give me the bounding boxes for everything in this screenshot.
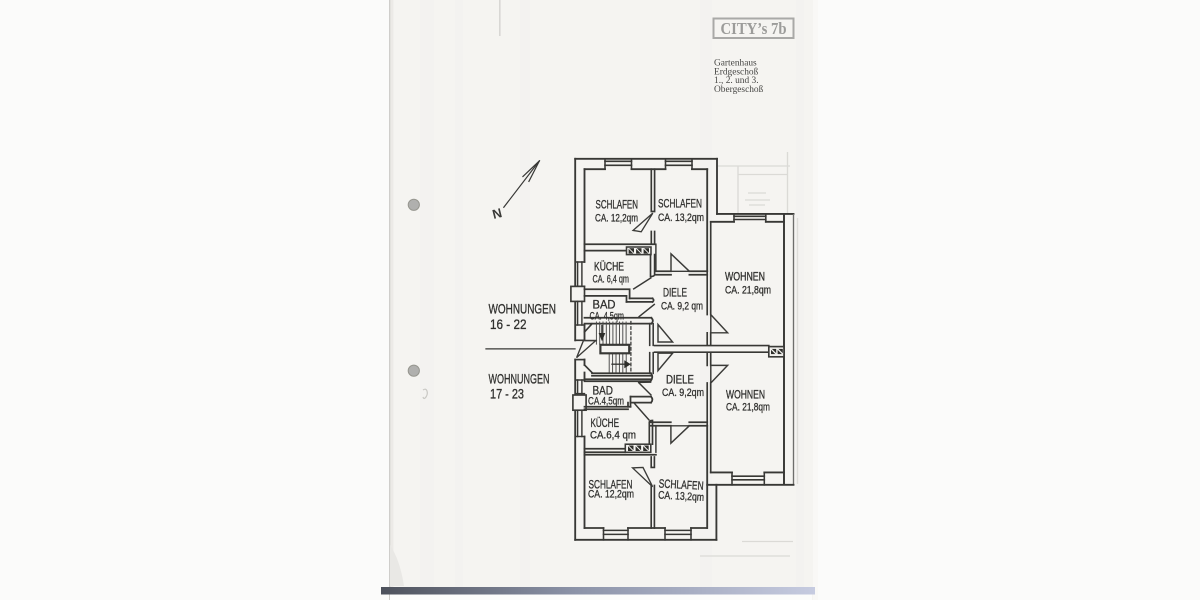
svg-text:CA. 6,4 qm: CA. 6,4 qm	[593, 274, 630, 286]
svg-text:CA. 4,5qm: CA. 4,5qm	[590, 311, 625, 323]
svg-text:CA. 9,2qm: CA. 9,2qm	[662, 387, 704, 399]
svg-text:CITY’s 7b: CITY’s 7b	[721, 19, 787, 38]
svg-text:KÜCHE: KÜCHE	[594, 262, 624, 274]
svg-text:CA. 12,2qm: CA. 12,2qm	[595, 213, 638, 225]
svg-text:CA. 13,2qm: CA. 13,2qm	[658, 490, 705, 504]
svg-text:CA.4,5qm: CA.4,5qm	[588, 396, 624, 408]
svg-text:SCHLAFEN: SCHLAFEN	[596, 198, 639, 212]
svg-text:DIELE: DIELE	[666, 375, 694, 387]
svg-text:WOHNUNGEN: WOHNUNGEN	[489, 301, 557, 317]
svg-text:CA. 9,2 qm: CA. 9,2 qm	[661, 301, 703, 313]
svg-text:WOHNEN: WOHNEN	[725, 272, 765, 284]
svg-text:CA.6,4 qm: CA.6,4 qm	[590, 430, 636, 442]
svg-text:KÜCHE: KÜCHE	[591, 418, 620, 430]
svg-text:16 - 22: 16 - 22	[490, 316, 527, 332]
svg-text:WOHNUNGEN: WOHNUNGEN	[489, 371, 550, 387]
svg-text:Obergeschoß: Obergeschoß	[714, 84, 764, 95]
svg-text:WOHNEN: WOHNEN	[726, 390, 765, 402]
svg-text:17 - 23: 17 - 23	[490, 386, 524, 402]
svg-text:CA. 21,8qm: CA. 21,8qm	[726, 402, 770, 414]
svg-text:DIELE: DIELE	[663, 288, 687, 300]
svg-text:CA. 13,2qm: CA. 13,2qm	[658, 212, 704, 224]
svg-text:SCHLAFEN: SCHLAFEN	[658, 197, 702, 211]
svg-text:CA. 12,2qm: CA. 12,2qm	[588, 489, 634, 501]
svg-text:CA. 21,8qm: CA. 21,8qm	[725, 285, 771, 297]
